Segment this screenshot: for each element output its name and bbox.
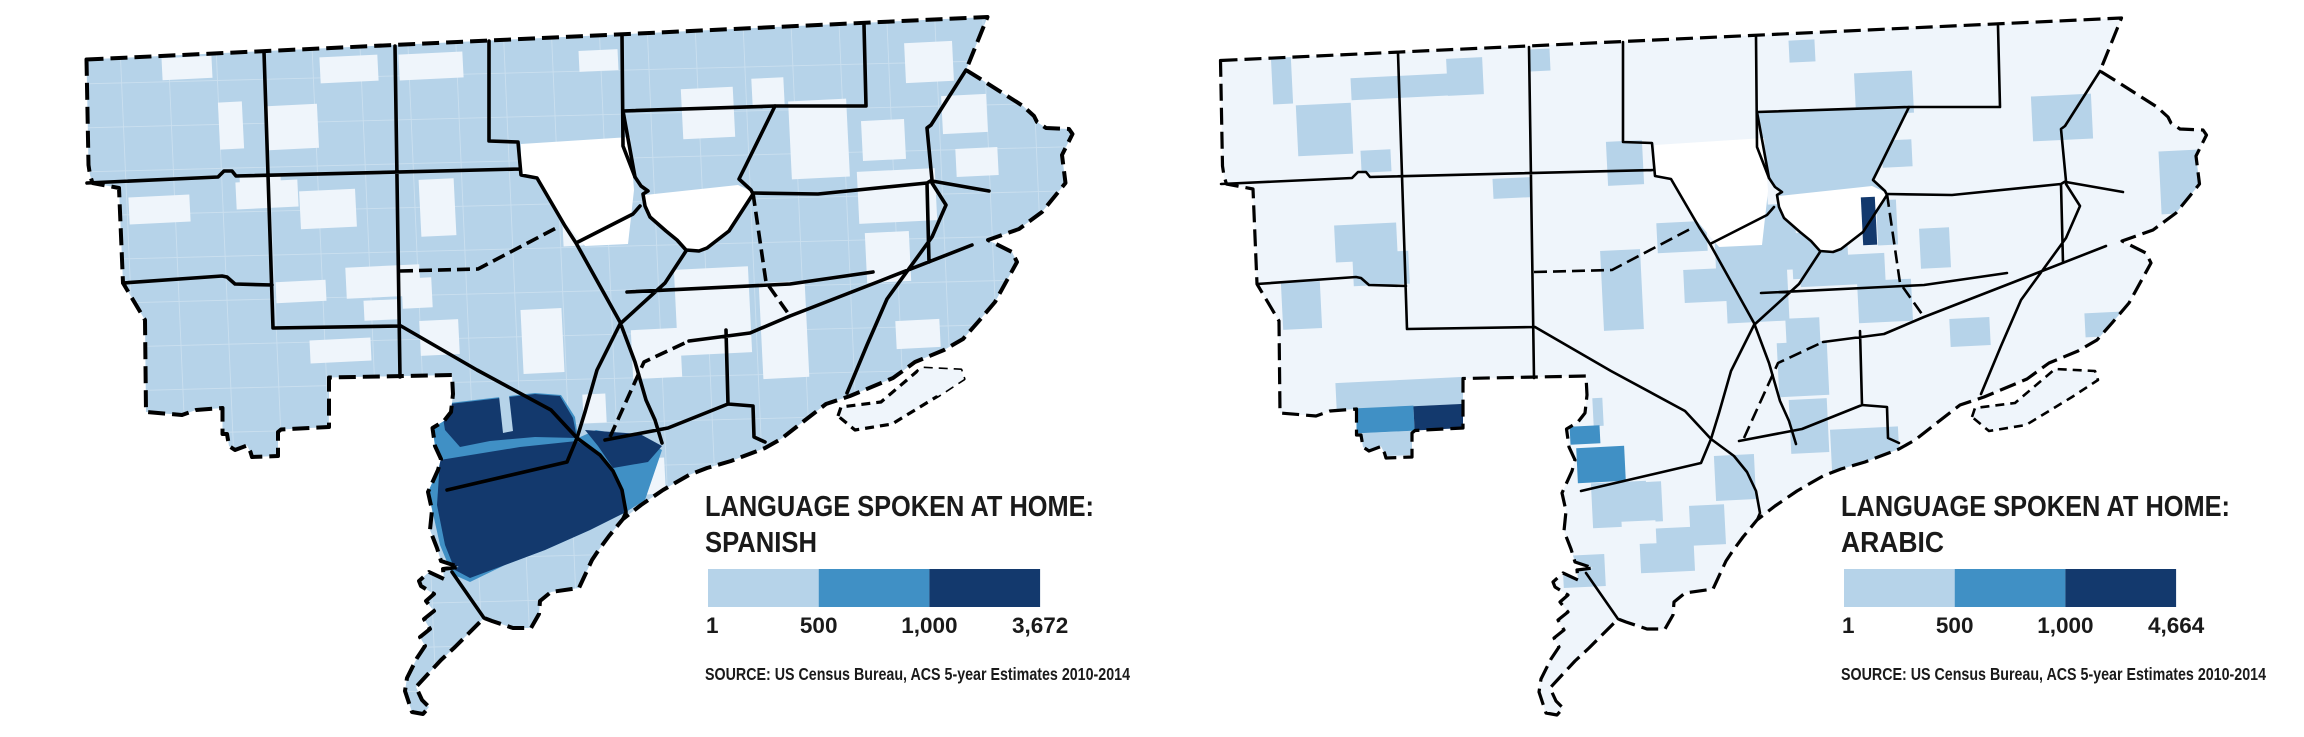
svg-text:ARABIC: ARABIC <box>1841 527 1944 559</box>
svg-text:500: 500 <box>1936 613 1974 638</box>
svg-text:1,000: 1,000 <box>2037 613 2093 638</box>
svg-text:SOURCE: US Census Bureau, ACS: SOURCE: US Census Bureau, ACS 5-year Est… <box>705 664 1130 684</box>
svg-text:1,000: 1,000 <box>901 613 957 638</box>
svg-text:SOURCE: US Census Bureau, ACS: SOURCE: US Census Bureau, ACS 5-year Est… <box>1841 664 2266 684</box>
svg-text:LANGUAGE SPOKEN AT HOME:: LANGUAGE SPOKEN AT HOME: <box>1841 491 2230 523</box>
svg-text:500: 500 <box>800 613 838 638</box>
svg-text:4,664: 4,664 <box>2148 613 2205 638</box>
svg-text:LANGUAGE SPOKEN AT HOME:: LANGUAGE SPOKEN AT HOME: <box>705 491 1094 523</box>
svg-text:SPANISH: SPANISH <box>705 527 817 559</box>
svg-text:1: 1 <box>1842 613 1855 638</box>
svg-text:3,672: 3,672 <box>1012 613 1068 638</box>
svg-text:1: 1 <box>706 613 719 638</box>
